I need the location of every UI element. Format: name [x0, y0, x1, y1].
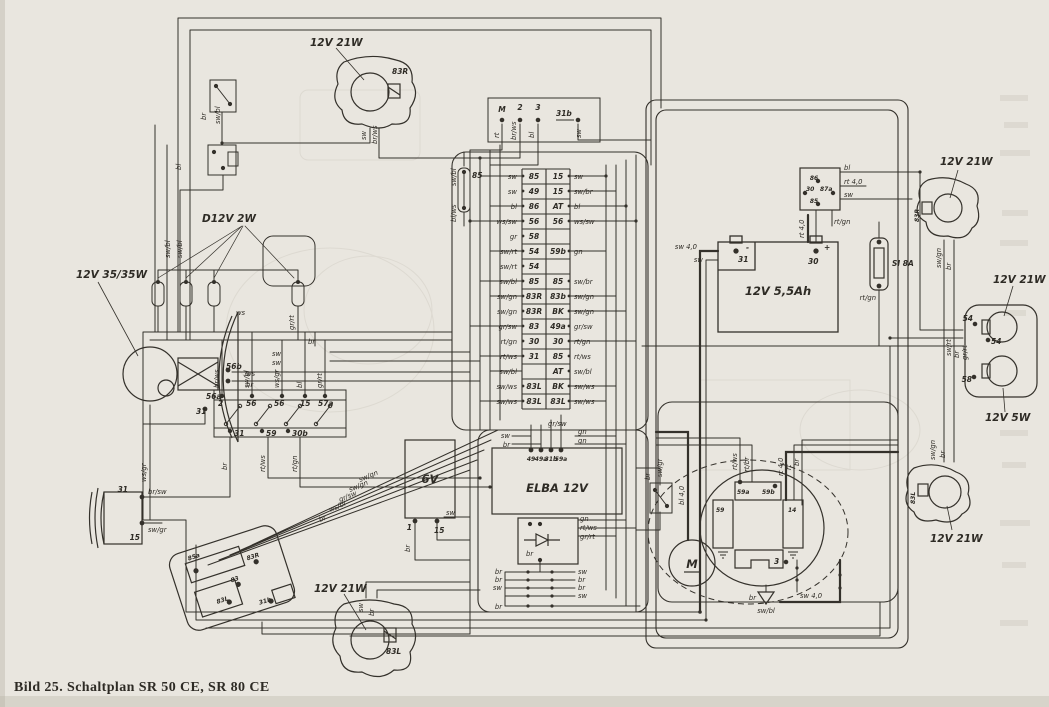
wire-label: sw/rt — [945, 339, 953, 356]
wire-label: br — [308, 338, 316, 346]
terminal-label: 59b — [762, 489, 775, 496]
terminal-label: 15 — [130, 533, 140, 542]
svg-text:ws/sw: ws/sw — [574, 218, 595, 226]
terminal-label: 2 — [218, 399, 223, 408]
motor-label: M — [686, 557, 698, 571]
tail-lamp-assembly: 12V 21W 54 54 58 12V 5W sw/rt br gr/rt — [945, 274, 1046, 424]
svg-text:BK: BK — [552, 307, 565, 316]
wire-label: bl — [528, 132, 536, 138]
terminal-label: 31 — [118, 485, 128, 494]
socket-label: 83R — [914, 209, 921, 222]
wire-label: br — [578, 584, 586, 592]
terminal-label: 3 — [535, 103, 540, 112]
wire-label: br/ws — [213, 369, 221, 388]
wire-label: sw/bl — [757, 607, 775, 615]
terminal-label: 59a — [555, 456, 567, 463]
svg-text:sw/rt: sw/rt — [500, 263, 517, 271]
wire-label: br — [578, 576, 586, 584]
svg-text:54: 54 — [529, 262, 539, 271]
wire-label: gr/sw — [548, 420, 567, 428]
svg-text:sw/gn: sw/gn — [574, 293, 594, 301]
terminal-label: 54 — [963, 314, 973, 323]
wire-label: gr/rt — [961, 345, 969, 360]
rating-label: 12V 21W — [993, 274, 1046, 286]
aux-fuse: 85 sw/bl bl/ws — [450, 168, 482, 222]
wire-label: rt/br — [743, 456, 751, 472]
wire-label: sw/bl — [214, 106, 222, 124]
svg-text:AT: AT — [552, 202, 564, 211]
wire-label: br — [200, 112, 208, 120]
wire-label: sw/bl — [176, 240, 184, 258]
svg-text:sw/ws: sw/ws — [574, 398, 595, 406]
wire-label: sw — [844, 191, 854, 199]
rating-label: 12V 21W — [930, 533, 983, 545]
brake-light-switch-front: br sw/bl — [200, 80, 236, 124]
svg-text:83R: 83R — [526, 292, 542, 301]
svg-text:58: 58 — [529, 232, 539, 241]
svg-text:59b: 59b — [550, 247, 566, 256]
engine-generator: M 59a 59b 59 14 3 rt/ws rt/br rt 4,0 rt … — [648, 453, 848, 615]
wire-label: rt 4,0 — [798, 220, 806, 238]
wire-label: rt — [493, 132, 501, 138]
wire-label: br — [793, 458, 801, 466]
svg-text:31: 31 — [529, 352, 539, 361]
terminal-label: 31 — [196, 407, 206, 416]
wire-label: br — [495, 603, 503, 611]
wire-label: br — [644, 472, 652, 480]
ignition-coil: 6V 1 15 sw br — [404, 440, 456, 552]
component-label: ELBA 12V — [526, 481, 589, 495]
rating-label: D12V 2W — [202, 213, 256, 225]
svg-text:rt/ws: rt/ws — [500, 353, 517, 361]
terminal-label: 87a — [820, 186, 832, 193]
svg-text:sw/br: sw/br — [574, 278, 594, 286]
terminal-label: 86 — [810, 175, 818, 182]
wire-label: gr/rt — [316, 373, 324, 388]
wire-label: rt/ws — [580, 524, 597, 532]
svg-text:gn: gn — [574, 248, 583, 256]
terminal-label: 85 — [472, 171, 482, 180]
terminal-label: 31 — [234, 429, 244, 438]
wire-label: sw/bl — [243, 370, 251, 388]
wire-label: rt 4,0 — [777, 458, 785, 476]
rating-label: 12V 5W — [985, 412, 1031, 424]
wire-label: gr/rt — [580, 533, 595, 541]
svg-text:30: 30 — [529, 337, 539, 346]
svg-text:85: 85 — [553, 277, 563, 286]
wire-label: sw/gr — [656, 457, 664, 477]
wire-label: br/sw — [148, 488, 167, 496]
svg-text:BK: BK — [552, 382, 565, 391]
strip-row: sw/rt54 — [500, 262, 539, 271]
svg-text:49a: 49a — [550, 322, 566, 331]
wire-label: sw/gn — [935, 248, 943, 268]
wire-label: gn — [578, 428, 587, 436]
svg-text:85: 85 — [529, 172, 539, 181]
figure-caption: Bild 25. Schaltplan SR 50 CE, SR 80 CE — [14, 680, 270, 695]
svg-text:rt/gn: rt/gn — [501, 338, 517, 346]
wire-label: sw/bl — [450, 168, 458, 186]
indicator-rear-left: 12V 21W 83L sw/gn br — [906, 440, 983, 545]
schaltplan-svg: sw8515sw sw4915sw/br bl86ATbl ws/sw5656w… — [0, 0, 1049, 707]
wire-label: sw/gr — [148, 526, 168, 534]
svg-text:56: 56 — [553, 217, 563, 226]
wire-label: rt — [785, 464, 793, 470]
wire-label: br — [495, 576, 503, 584]
wire-label: bl — [296, 382, 304, 388]
svg-text:rt/ws: rt/ws — [574, 353, 591, 361]
terminal-label: 1 — [407, 523, 412, 532]
terminal-label: 83L — [216, 595, 230, 605]
reverse-page-bleed — [1000, 95, 1030, 626]
terminal-label: 15 — [300, 399, 310, 408]
wire-label: br/ws — [510, 121, 518, 140]
svg-text:56: 56 — [529, 217, 539, 226]
terminal-label: 56b — [226, 362, 242, 371]
wire-label: gr/rt — [288, 315, 296, 330]
svg-text:rt/gn: rt/gn — [574, 338, 590, 346]
socket-label: 83L — [910, 492, 917, 504]
component-label: 6V — [422, 472, 440, 486]
svg-text:83: 83 — [529, 322, 539, 331]
wire-label: sw — [578, 592, 588, 600]
wire-label: bl — [175, 164, 183, 170]
wire-label: sw/gn — [929, 440, 937, 460]
svg-text:AT: AT — [552, 367, 564, 376]
wire-label: rt 4,0 — [844, 178, 862, 186]
terminal-label: 59 — [716, 507, 724, 514]
wire-label: rt/gn — [291, 456, 299, 472]
elba-unit: 49 49a 31b 59a ELBA 12V sw br gn gn — [492, 428, 622, 514]
wire-label: gn — [578, 437, 587, 445]
svg-text:30: 30 — [553, 337, 563, 346]
svg-text:85: 85 — [553, 352, 563, 361]
svg-text:sw/ws: sw/ws — [574, 383, 595, 391]
svg-text:83L: 83L — [526, 382, 541, 391]
relay: 86 30 87a 85 bl rt 4,0 sw rt/gn — [800, 164, 862, 226]
svg-text:ws/sw: ws/sw — [497, 218, 518, 226]
strip-row: gr58 — [510, 232, 539, 241]
wire-label: sw 4,0 — [675, 243, 697, 251]
svg-text:sw/ws: sw/ws — [497, 383, 518, 391]
wire-label: sw — [493, 584, 503, 592]
svg-text:83R: 83R — [526, 307, 542, 316]
terminal-label: 58 — [962, 375, 972, 384]
terminal-label: 30 — [808, 257, 818, 266]
wire-label: br — [368, 608, 376, 616]
rectifier: gn rt/ws gr/rt br — [518, 515, 597, 564]
indicator-front-left: 12V 21W 83L sw br — [314, 583, 416, 677]
wire-label: sw — [272, 350, 282, 358]
wire-label: br — [526, 550, 534, 558]
fuse: SI 8A rt/gn — [860, 238, 914, 302]
socket-label: 83L — [386, 647, 401, 656]
svg-text:gr/sw: gr/sw — [574, 323, 593, 331]
wire-label: rt/gn — [860, 294, 876, 302]
wire-label: br — [503, 441, 511, 449]
rating-label: 12V 21W — [310, 37, 363, 49]
svg-text:sw/rt: sw/rt — [500, 248, 517, 256]
wire-label: rt/gn — [834, 218, 850, 226]
wire-label: bl/ws — [450, 204, 458, 222]
headlamp: 12V 35/35W 56b 56a 31 ws br ws/gr — [76, 269, 256, 482]
wire-label: sw/bl — [164, 240, 172, 258]
wire-label: sw/gn — [358, 469, 380, 484]
svg-text:bl: bl — [574, 203, 580, 211]
wire-label: br — [939, 450, 947, 458]
svg-text:sw/ws: sw/ws — [497, 398, 518, 406]
svg-text:15: 15 — [553, 187, 563, 196]
scan-ghost-marks — [226, 90, 920, 470]
svg-text:sw/bl: sw/bl — [499, 368, 517, 376]
svg-text:86: 86 — [529, 202, 539, 211]
wire-label: ws/gr — [140, 462, 148, 482]
terminal-label: 56 — [274, 399, 284, 408]
wire-label: sw — [501, 432, 511, 440]
svg-text:bl: bl — [511, 203, 517, 211]
scan-bottom-band — [0, 696, 1049, 707]
terminal-label: 30b — [292, 429, 308, 438]
svg-text:54: 54 — [529, 247, 539, 256]
svg-text:sw: sw — [574, 173, 584, 181]
svg-text:85: 85 — [529, 277, 539, 286]
clutch-switch-front: bl — [175, 145, 238, 175]
light-switch: 2 56 56 15 57a 31 59 30b br/ws sw/bl ws/… — [213, 338, 346, 472]
terminal-label: 59a — [737, 489, 749, 496]
terminal-label: 31b — [556, 109, 572, 118]
horn: 31 br/sw 15 sw/gr — [90, 485, 168, 548]
svg-text:sw/gn: sw/gn — [497, 293, 517, 301]
terminal-label: 85 — [810, 198, 818, 205]
terminal-label: 31 — [738, 255, 748, 264]
wire-label: rt/ws — [731, 453, 739, 470]
wire-label: sw — [446, 509, 456, 517]
wire-label: br — [945, 262, 953, 270]
scan-left-band — [0, 0, 5, 707]
svg-text:sw/gn: sw/gn — [574, 308, 594, 316]
rating-label: 12V 21W — [940, 156, 993, 168]
strip-row: sw/bl8585sw/br — [499, 277, 593, 286]
wire-label: sw — [575, 128, 583, 138]
svg-text:sw: sw — [508, 188, 518, 196]
svg-text:sw/bl: sw/bl — [574, 368, 592, 376]
terminal-label: 85a — [187, 552, 201, 562]
ignition-switch: M 2 3 31b rt br/ws bl sw — [488, 98, 600, 142]
svg-text:sw/gn: sw/gn — [497, 308, 517, 316]
rating-label: 12V 35/35W — [76, 269, 147, 281]
wire-label: sw — [360, 130, 368, 140]
wire-label: sw — [357, 602, 365, 612]
polarity-sign: + — [824, 243, 830, 252]
strip-row: sw4915sw/br — [508, 187, 594, 196]
terminal-label: 30 — [806, 186, 814, 193]
wire-label: gn — [580, 515, 589, 523]
pilot-lamps: D12V 2W sw/bl sw/bl ws gr/rt — [152, 213, 315, 330]
terminal-label: 56 — [246, 399, 256, 408]
wire-label: sw — [272, 359, 282, 367]
svg-text:83L: 83L — [526, 397, 541, 406]
wire-label: sw — [694, 256, 704, 264]
heavy-gauge-wires — [656, 215, 898, 612]
handlebar-wire-labels: br ws/bl gr/sw sw/gn sw/gn — [318, 469, 380, 524]
terminal-label: M — [498, 105, 506, 114]
svg-text:sw/bl: sw/bl — [499, 278, 517, 286]
wire-label: bl — [844, 164, 850, 172]
wire-label: bl 4,0 — [678, 486, 686, 505]
svg-text:83L: 83L — [550, 397, 565, 406]
svg-text:gr: gr — [510, 233, 518, 241]
connector-rows: br br sw sw br br sw br — [493, 568, 588, 611]
wire-label: ws/gr — [273, 368, 281, 388]
terminal-label: 59 — [266, 429, 276, 438]
wire-label: br/ws — [371, 125, 379, 144]
wire-label: br — [749, 594, 757, 602]
scanned-wiring-diagram: sw8515sw sw4915sw/br bl86ATbl ws/sw5656w… — [0, 0, 1049, 707]
terminal-label: 3 — [774, 557, 779, 566]
terminal-strip: sw8515sw sw4915sw/br bl86ATbl ws/sw5656w… — [497, 169, 595, 428]
wire-label: br — [953, 350, 961, 358]
terminal-label: 2 — [517, 103, 522, 112]
socket-label: 83R — [392, 67, 408, 76]
svg-text:83b: 83b — [550, 292, 566, 301]
terminal-label: 14 — [788, 507, 796, 514]
rating-label: 12V 5,5Ah — [745, 284, 811, 298]
component-label: SI 8A — [892, 259, 914, 268]
terminal-label: 57a — [318, 399, 334, 408]
svg-text:gr/sw: gr/sw — [499, 323, 518, 331]
wire-label: sw 4,0 — [800, 592, 822, 600]
svg-text:49: 49 — [529, 187, 539, 196]
terminal-label: 54 — [991, 337, 1001, 346]
terminal-label: 15 — [434, 526, 444, 535]
polarity-sign: - — [746, 243, 749, 252]
wire-label: br — [221, 462, 229, 470]
wire-label: br — [404, 544, 412, 552]
svg-text:sw/br: sw/br — [574, 188, 594, 196]
wire-label: rt/ws — [259, 455, 267, 472]
svg-text:15: 15 — [553, 172, 563, 181]
wire-label: sw — [578, 568, 588, 576]
rating-label: 12V 21W — [314, 583, 367, 595]
terminal-label: 31b — [258, 596, 273, 607]
svg-text:sw: sw — [508, 173, 518, 181]
wire-label: br — [495, 568, 503, 576]
